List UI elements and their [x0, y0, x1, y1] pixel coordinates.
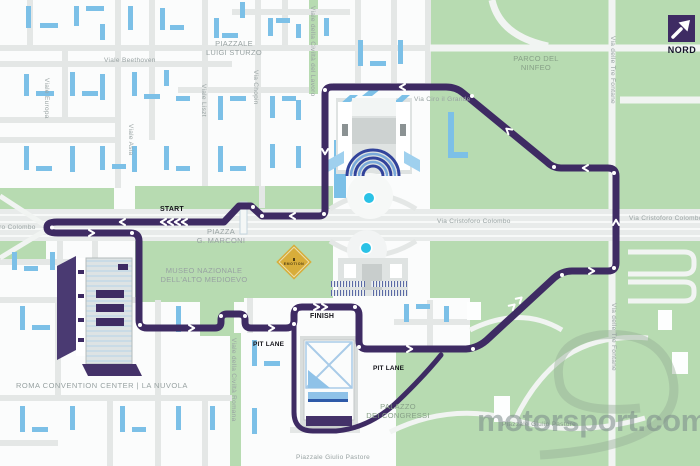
diamond-dot [293, 258, 296, 261]
nord-label: NORD [662, 45, 700, 55]
label-via-cristoforo-colombo-center: Via Cristoforo Colombo [437, 218, 511, 226]
emotion-diamond-logo: EMOTION [276, 244, 310, 278]
label-via-delle-tre-fontane-north: Via delle Tre Fontane [608, 36, 616, 104]
label-via-chopin: Via Chopin [251, 70, 259, 105]
label-viale-della-civilta-romana: Viale della Civiltà Romana [229, 338, 237, 422]
pit-lane-label-right: PIT LANE [373, 365, 404, 372]
label-viale-asia: Viale Asia [126, 124, 134, 155]
nord-arrow-icon [668, 15, 695, 42]
map-graphics [0, 0, 700, 466]
label-via-ciro-il-grande: Via Ciro il Grande [414, 96, 471, 104]
label-viale-europa: Viale Europa [42, 78, 50, 119]
label-roma-convention-center: ROMA CONVENTION CENTER | LA NUVOLA [16, 381, 188, 390]
label-viale-beethoven: Viale Beethoven [104, 57, 156, 65]
watermark: motorsport.com [477, 403, 700, 439]
label-viale-liszt: Viale Liszt [199, 84, 207, 117]
label-piazza-marconi: PIAZZA G. MARCONI [185, 227, 257, 246]
diamond-text: EMOTION [284, 262, 305, 266]
nord-compass [668, 15, 695, 42]
label-via-cristoforo-colombo-east: Via Cristoforo Colombo [629, 215, 700, 223]
label-piazzale-luigi-sturzo: PIAZZALE LUIGI STURZO [196, 39, 272, 58]
label-parco-del-ninfeo: PARCO DEL NINFEO [500, 54, 572, 73]
diamond-shape: EMOTION [278, 246, 309, 277]
start-label: START [160, 206, 184, 213]
label-piazzale-giulio-pastore: Piazzale Giulio Pastore [296, 454, 370, 462]
label-palazzo-dei-congressi: PALAZZO DEI CONGRESSI [360, 402, 436, 421]
finish-label: FINISH [310, 313, 334, 320]
la-nuvola-building [57, 256, 142, 376]
label-via-cristoforo-colombo-west: Via Cristoforo Colombo [0, 224, 36, 232]
pit-lane-label-left: PIT LANE [253, 341, 284, 348]
label-viale-della-civilta-del-lavoro: Viale della Civiltà del Lavoro [308, 6, 316, 97]
palazzo-congressi-building [300, 336, 358, 430]
label-museo-nazionale: MUSEO NAZIONALE DELL'ALTO MEDIOEVO [148, 266, 260, 285]
label-via-delle-tre-fontane-south: Via delle Tre Fontane [609, 303, 617, 371]
circuit-map: PIAZZALE LUIGI STURZO Viale Beethoven Vi… [0, 0, 700, 466]
